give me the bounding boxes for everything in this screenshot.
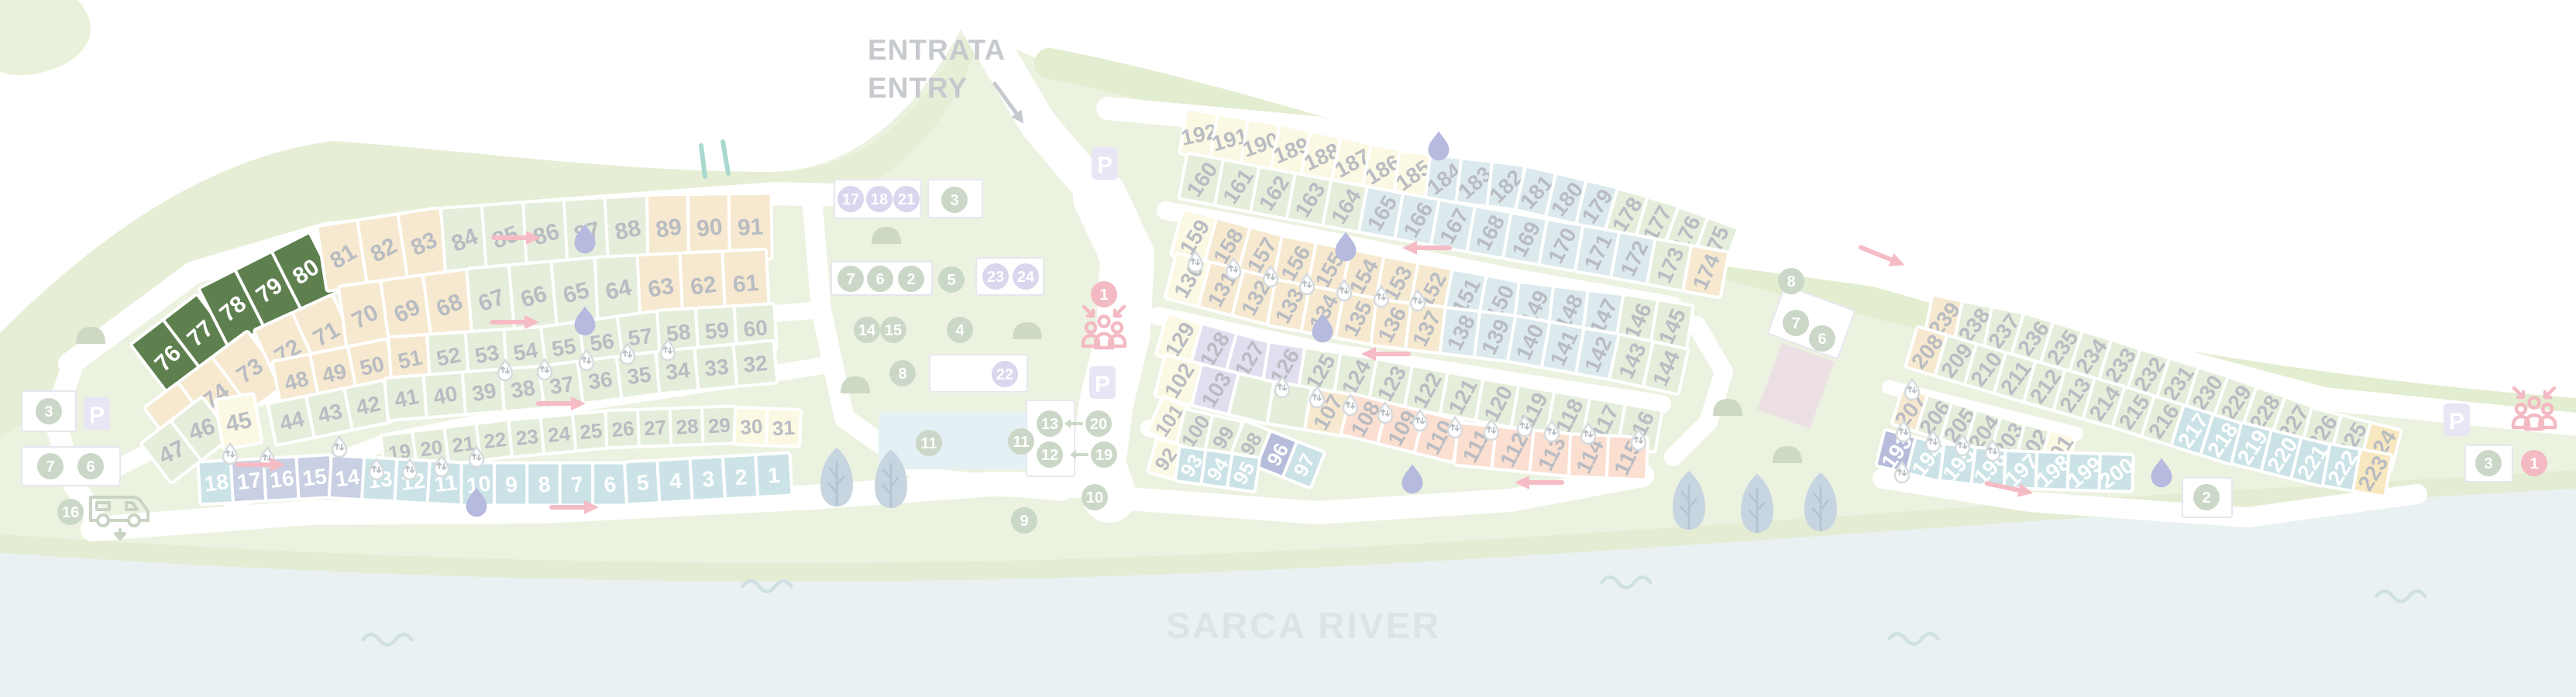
plot-15[interactable]: 15 bbox=[296, 455, 332, 499]
plot-number: 54 bbox=[511, 338, 539, 366]
plot-84[interactable]: 84 bbox=[441, 205, 488, 274]
facility-marker-24[interactable]: 24 bbox=[1013, 263, 1039, 290]
facility-number: 4 bbox=[955, 322, 965, 339]
facility-marker-18[interactable]: 18 bbox=[866, 186, 892, 212]
facility-number: 6 bbox=[86, 458, 95, 476]
plot-number: 17 bbox=[236, 468, 263, 495]
plot-number: 89 bbox=[654, 214, 683, 243]
plot-number: 5 bbox=[636, 470, 650, 495]
plot-number: 91 bbox=[737, 214, 764, 241]
facility-marker-7[interactable]: 7 bbox=[1783, 310, 1809, 336]
plot-number: 32 bbox=[742, 351, 769, 377]
facility-number: 7 bbox=[1791, 315, 1800, 332]
plot-number: 28 bbox=[676, 414, 700, 439]
plot-number: 9 bbox=[504, 472, 519, 496]
facility-number: 11 bbox=[1013, 434, 1029, 451]
facility-number: 12 bbox=[1041, 447, 1058, 464]
plot-30[interactable]: 30 bbox=[734, 407, 769, 446]
facility-marker-8[interactable]: 8 bbox=[1778, 268, 1804, 294]
facility-marker-15[interactable]: 15 bbox=[880, 317, 906, 343]
plot-number: 33 bbox=[703, 355, 730, 381]
facility-marker-1[interactable]: 1 bbox=[1091, 281, 1117, 307]
parking-icon[interactable]: P bbox=[84, 397, 110, 430]
plot-number: 52 bbox=[435, 342, 463, 371]
parking-letter: P bbox=[2449, 409, 2464, 434]
facility-number: 8 bbox=[898, 366, 906, 383]
facility-marker-7[interactable]: 7 bbox=[837, 266, 864, 292]
plot-5[interactable]: 5 bbox=[624, 460, 661, 504]
facility-number: 23 bbox=[987, 269, 1004, 286]
facility-number: 19 bbox=[1095, 447, 1113, 464]
plot-18[interactable]: 18 bbox=[198, 460, 235, 504]
facility-number: 14 bbox=[858, 322, 876, 339]
entrance-label: ENTRATA ENTRY bbox=[868, 31, 1006, 107]
facility-marker-16[interactable]: 16 bbox=[57, 499, 84, 525]
plot-2[interactable]: 2 bbox=[723, 455, 759, 499]
facility-number: 2 bbox=[906, 271, 915, 288]
facility-marker-11[interactable]: 11 bbox=[916, 430, 942, 456]
plot-88[interactable]: 88 bbox=[605, 195, 651, 263]
post-marker bbox=[723, 142, 728, 173]
plot-8[interactable]: 8 bbox=[527, 463, 561, 506]
facility-marker-22[interactable]: 22 bbox=[992, 361, 1018, 387]
plot-number: 18 bbox=[203, 469, 230, 496]
plot-number: 8 bbox=[537, 472, 552, 496]
plot-4[interactable]: 4 bbox=[657, 458, 693, 503]
plot-number: 34 bbox=[665, 358, 692, 384]
plot-32[interactable]: 32 bbox=[733, 341, 777, 387]
plot-number: 15 bbox=[301, 464, 328, 491]
facility-number: 13 bbox=[1041, 416, 1058, 433]
facility-panel bbox=[22, 447, 120, 486]
plot-95[interactable]: 95 bbox=[1226, 453, 1261, 492]
plot-number: 56 bbox=[588, 328, 615, 355]
facility-number: 7 bbox=[46, 458, 54, 476]
plot-number: 26 bbox=[610, 417, 635, 441]
facility-number: 3 bbox=[2484, 455, 2492, 472]
facility-marker-8[interactable]: 8 bbox=[889, 360, 916, 386]
plot-33[interactable]: 33 bbox=[694, 344, 738, 390]
plot-number: 90 bbox=[696, 214, 724, 242]
plot-number: 88 bbox=[613, 215, 643, 245]
plot-number: 3 bbox=[701, 467, 715, 492]
plot-7[interactable]: 7 bbox=[560, 463, 594, 506]
plot-number: 7 bbox=[570, 472, 584, 496]
plot-number: 57 bbox=[627, 324, 654, 351]
plot-number: 14 bbox=[334, 465, 361, 492]
parking-letter: P bbox=[89, 403, 105, 428]
plot-number: 45 bbox=[223, 407, 254, 438]
plot-number: 6 bbox=[603, 472, 617, 496]
facility-marker-5[interactable]: 5 bbox=[938, 266, 965, 293]
plot-200[interactable]: 200 bbox=[2094, 452, 2138, 494]
river-label: SARCA RIVER bbox=[1166, 604, 1441, 647]
plot-number: 38 bbox=[509, 376, 537, 403]
facility-marker-10[interactable]: 10 bbox=[1082, 484, 1108, 510]
plot-number: 1 bbox=[767, 463, 781, 488]
plot-31[interactable]: 31 bbox=[766, 408, 801, 447]
facility-marker-17[interactable]: 17 bbox=[837, 186, 864, 212]
facility-number: 11 bbox=[920, 435, 937, 452]
plot-number: 51 bbox=[396, 345, 425, 373]
facility-number: 17 bbox=[842, 191, 859, 208]
plot-number: 61 bbox=[732, 270, 760, 298]
plot-144[interactable]: 144 bbox=[1643, 342, 1689, 395]
plot-3[interactable]: 3 bbox=[690, 456, 727, 500]
facility-number: 8 bbox=[1787, 273, 1795, 290]
facility-marker-14[interactable]: 14 bbox=[854, 317, 880, 343]
facility-marker-11[interactable]: 11 bbox=[1008, 428, 1034, 455]
facility-marker-3[interactable]: 3 bbox=[36, 398, 62, 424]
parking-icon[interactable]: P bbox=[1092, 147, 1118, 180]
facility-number: 10 bbox=[1086, 489, 1103, 506]
plot-number: 31 bbox=[772, 416, 795, 440]
facility-marker-7[interactable]: 7 bbox=[37, 453, 64, 479]
facility-marker-4[interactable]: 4 bbox=[947, 317, 973, 343]
entrance-label-en: ENTRY bbox=[868, 69, 1006, 107]
facility-number: 5 bbox=[947, 272, 955, 289]
facility-number: 15 bbox=[885, 322, 902, 339]
plot-29[interactable]: 29 bbox=[702, 406, 737, 444]
campsite-map-page: 7677787980818283848586878889909175747372… bbox=[0, 0, 2576, 697]
facility-number: 21 bbox=[898, 191, 915, 208]
facility-marker-21[interactable]: 21 bbox=[893, 186, 920, 212]
plot-number: 35 bbox=[626, 362, 653, 390]
facility-marker-6[interactable]: 6 bbox=[77, 453, 104, 479]
parking-icon[interactable]: P bbox=[2444, 403, 2470, 436]
parking-icon[interactable]: P bbox=[1089, 366, 1116, 399]
facility-marker-1[interactable]: 1 bbox=[2521, 450, 2547, 476]
parking-letter: P bbox=[1097, 153, 1113, 178]
plot-number: 39 bbox=[470, 378, 498, 406]
plot-174[interactable]: 174 bbox=[1683, 245, 1728, 298]
facility-number: 2 bbox=[2202, 489, 2210, 506]
plot-number: 62 bbox=[689, 272, 717, 300]
plot-1[interactable]: 1 bbox=[755, 453, 792, 497]
facility-marker-3[interactable]: 3 bbox=[2475, 450, 2502, 476]
facility-number: 6 bbox=[875, 271, 884, 288]
water-droplet-icon bbox=[1429, 131, 1450, 160]
plot-number: 30 bbox=[740, 414, 764, 439]
facility-marker-6[interactable]: 6 bbox=[867, 266, 893, 292]
plot-45[interactable]: 45 bbox=[215, 393, 262, 450]
plot-27[interactable]: 27 bbox=[638, 408, 672, 446]
campsite-map: 7677787980818283848586878889909175747372… bbox=[0, 0, 2576, 697]
facility-marker-23[interactable]: 23 bbox=[982, 263, 1009, 290]
facility-number: 1 bbox=[1099, 287, 1108, 304]
plot-25[interactable]: 25 bbox=[573, 411, 610, 452]
entrance-label-it: ENTRATA bbox=[868, 31, 1006, 69]
facility-number: 18 bbox=[871, 191, 888, 208]
facility-number: 1 bbox=[2530, 455, 2538, 472]
plot-number: 40 bbox=[432, 381, 459, 409]
facility-number: 3 bbox=[950, 192, 958, 209]
plot-number: 27 bbox=[643, 415, 667, 440]
plot-6[interactable]: 6 bbox=[593, 463, 627, 506]
plot-number: 55 bbox=[550, 334, 578, 362]
plot-65[interactable]: 65 bbox=[551, 257, 600, 327]
plot-28[interactable]: 28 bbox=[669, 407, 704, 445]
facility-marker-6[interactable]: 6 bbox=[1809, 325, 1835, 352]
plot-number: 53 bbox=[473, 340, 500, 368]
terrain-corner bbox=[0, 0, 91, 75]
facility-number: 24 bbox=[1017, 269, 1035, 286]
facility-number: 22 bbox=[996, 366, 1013, 383]
plot-number: 63 bbox=[646, 273, 676, 303]
plot-41[interactable]: 41 bbox=[384, 375, 428, 421]
facility-number: 3 bbox=[44, 403, 53, 421]
facility-number: 6 bbox=[1818, 331, 1826, 348]
facility-number: 16 bbox=[62, 504, 79, 521]
plot-number: 37 bbox=[548, 372, 575, 399]
plot-26[interactable]: 26 bbox=[606, 410, 641, 448]
plot-40[interactable]: 40 bbox=[424, 372, 467, 417]
facility-marker-2[interactable]: 2 bbox=[2193, 484, 2220, 510]
parking-letter: P bbox=[1095, 372, 1110, 397]
plot-number: 36 bbox=[586, 367, 614, 394]
facility-number: 7 bbox=[846, 271, 855, 288]
facility-marker-13[interactable]: 13 bbox=[1037, 410, 1063, 437]
facility-marker-12[interactable]: 12 bbox=[1037, 441, 1063, 468]
plot-14[interactable]: 14 bbox=[329, 455, 366, 500]
plot-number: 59 bbox=[703, 318, 730, 344]
facility-number: 9 bbox=[1020, 513, 1028, 530]
plot-number: 2 bbox=[734, 465, 748, 489]
plot-number: 22 bbox=[483, 427, 507, 453]
plot-number: 24 bbox=[547, 421, 572, 447]
plot-number: 60 bbox=[742, 315, 769, 342]
plot-9[interactable]: 9 bbox=[494, 463, 528, 506]
plot-number: 29 bbox=[707, 414, 731, 438]
facility-marker-9[interactable]: 9 bbox=[1011, 507, 1037, 534]
facility-marker-2[interactable]: 2 bbox=[898, 266, 924, 292]
plot-number: 23 bbox=[514, 424, 539, 450]
plot-number: 25 bbox=[579, 419, 604, 445]
facility-number: 20 bbox=[1090, 416, 1107, 433]
plot-number: 4 bbox=[669, 469, 683, 493]
facility-marker-3[interactable]: 3 bbox=[941, 187, 968, 213]
plot-number: 41 bbox=[392, 384, 421, 413]
plot-number: 42 bbox=[354, 391, 383, 420]
plot-89[interactable]: 89 bbox=[647, 194, 690, 261]
